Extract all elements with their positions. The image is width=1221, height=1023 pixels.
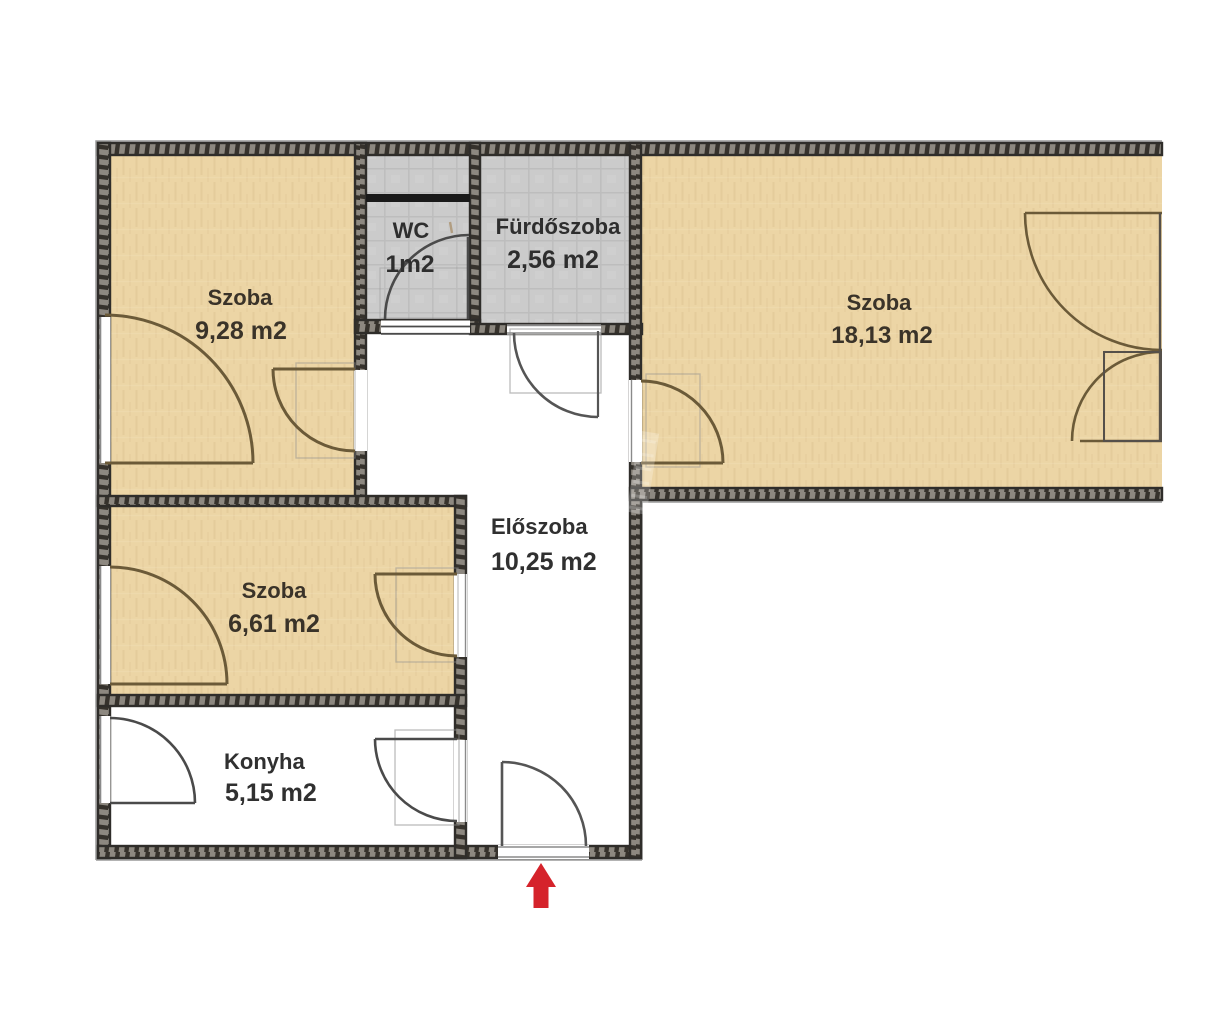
svg-text:Szoba: Szoba [242,578,308,603]
svg-text:Szoba: Szoba [208,285,274,310]
svg-text:1m2: 1m2 [385,251,434,278]
svg-text:5,15 m2: 5,15 m2 [225,779,317,807]
svg-text:Fürdőszoba: Fürdőszoba [496,214,621,239]
svg-text:18,13 m2: 18,13 m2 [831,322,932,349]
svg-text:6,61 m2: 6,61 m2 [228,610,320,638]
svg-text:WC: WC [393,218,430,243]
svg-text:9,28 m2: 9,28 m2 [195,317,287,345]
svg-text:Előszoba: Előszoba [491,514,588,539]
svg-text:2,56 m2: 2,56 m2 [507,246,599,274]
svg-text:Szoba: Szoba [847,290,913,315]
svg-text:10,25 m2: 10,25 m2 [491,548,597,576]
svg-text:Konyha: Konyha [224,749,305,774]
